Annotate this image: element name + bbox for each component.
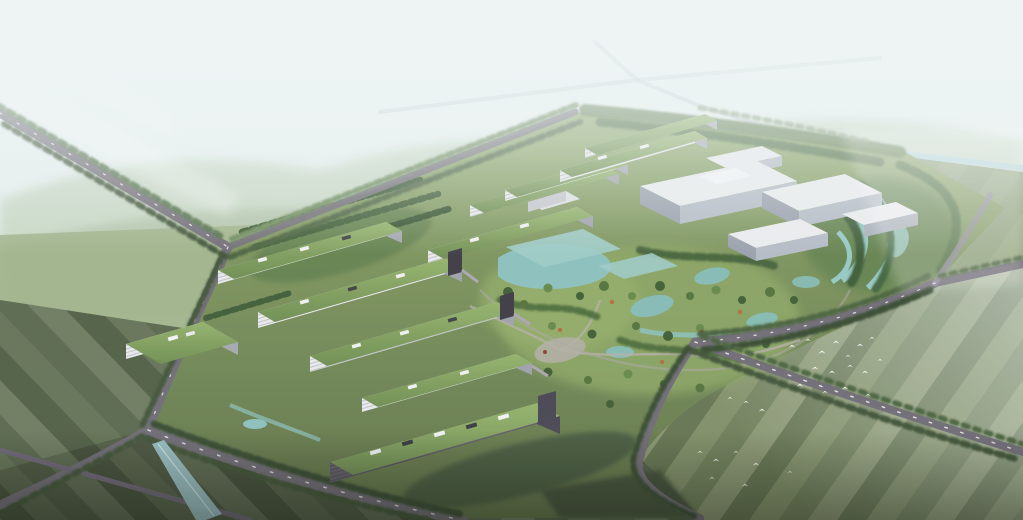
scene-canvas <box>0 0 1023 520</box>
atmosphere <box>0 0 1023 520</box>
aerial-rendering <box>0 0 1023 520</box>
bottom-shade <box>0 430 1023 520</box>
